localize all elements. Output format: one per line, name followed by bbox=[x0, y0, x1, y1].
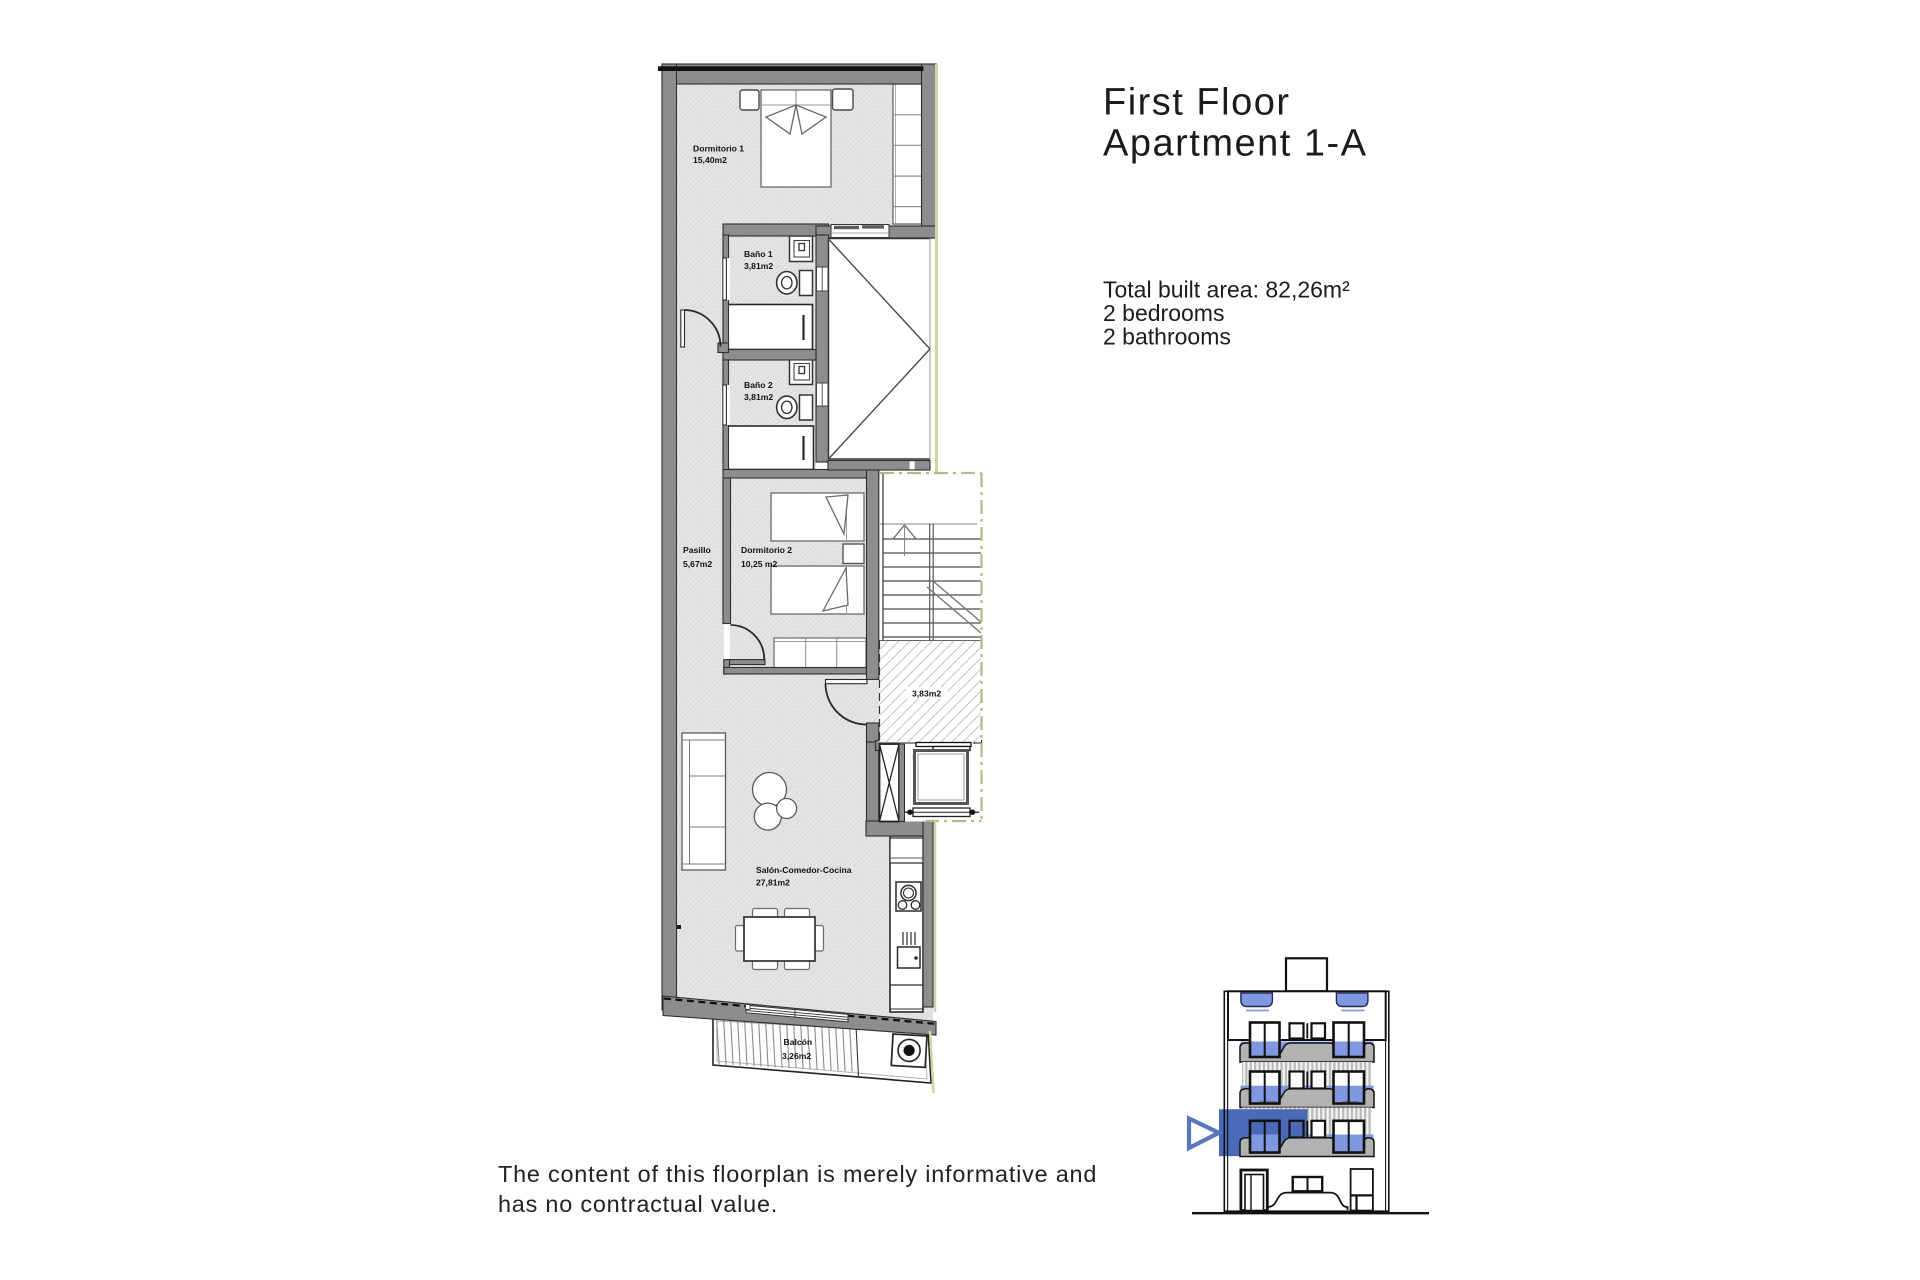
svg-text:3,81m2: 3,81m2 bbox=[744, 392, 773, 402]
svg-text:10,25 m2: 10,25 m2 bbox=[741, 559, 778, 569]
svg-text:Dormitorio 2: Dormitorio 2 bbox=[741, 545, 792, 555]
svg-text:3,26m2: 3,26m2 bbox=[782, 1051, 811, 1061]
svg-text:2 bathrooms: 2 bathrooms bbox=[1103, 324, 1231, 350]
svg-text:Balcón: Balcón bbox=[784, 1037, 813, 1047]
svg-text:27,81m2: 27,81m2 bbox=[756, 878, 790, 888]
svg-text:3,83m2: 3,83m2 bbox=[912, 689, 941, 699]
svg-text:Pasillo: Pasillo bbox=[683, 545, 711, 555]
svg-text:Apartment 1-A: Apartment 1-A bbox=[1103, 123, 1368, 165]
svg-text:2 bedrooms: 2 bedrooms bbox=[1103, 300, 1224, 326]
svg-text:Dormitorio 1: Dormitorio 1 bbox=[693, 144, 744, 154]
svg-text:5,67m2: 5,67m2 bbox=[683, 559, 712, 569]
svg-text:has no contractual value.: has no contractual value. bbox=[498, 1191, 778, 1217]
svg-text:15,40m2: 15,40m2 bbox=[693, 155, 727, 165]
svg-text:Salón-Comedor-Cocina: Salón-Comedor-Cocina bbox=[756, 865, 852, 875]
svg-text:3,81m2: 3,81m2 bbox=[744, 261, 773, 271]
svg-text:First Floor: First Floor bbox=[1103, 82, 1291, 124]
svg-text:The content of this floorplan: The content of this floorplan is merely … bbox=[498, 1161, 1097, 1187]
svg-text:Total built area: 82,26m²: Total built area: 82,26m² bbox=[1103, 277, 1350, 303]
svg-text:Baño 2: Baño 2 bbox=[744, 380, 773, 390]
svg-text:Baño 1: Baño 1 bbox=[744, 249, 773, 259]
